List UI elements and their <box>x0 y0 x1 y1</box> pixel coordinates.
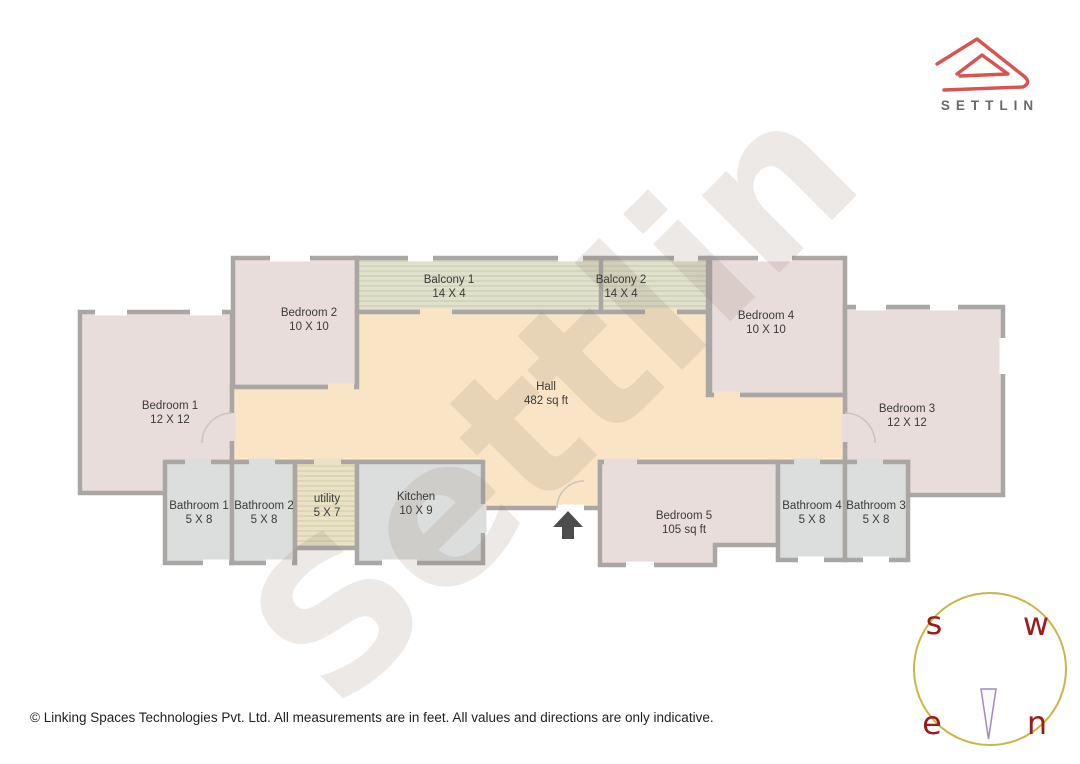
door-gap <box>328 384 354 391</box>
logo-brand-text: SETTLIN <box>941 98 1039 113</box>
room-label-bathroom-2: Bathroom 2 <box>234 500 293 512</box>
compass-letter-e: e <box>922 704 942 742</box>
room-label-hall: Hall <box>536 381 556 393</box>
window-gap <box>798 557 824 564</box>
settlin-logo: SETTLIN <box>937 39 1039 113</box>
door-gap <box>842 414 849 442</box>
room-dims-bathroom-3: 5 X 8 <box>863 514 890 526</box>
door-gap <box>229 413 236 441</box>
room-dims-bathroom-1: 5 X 8 <box>186 514 213 526</box>
room-label-bedroom-3: Bedroom 3 <box>879 403 935 415</box>
window-gap <box>863 557 889 564</box>
room-label-bathroom-1: Bathroom 1 <box>169 500 228 512</box>
room-label-balcony-2: Balcony 2 <box>596 274 647 286</box>
window-gap <box>95 309 127 316</box>
room-label-balcony-1: Balcony 1 <box>424 274 475 286</box>
room-label-bathroom-3: Bathroom 3 <box>846 500 905 512</box>
window-gap <box>190 309 222 316</box>
door-gap <box>185 459 211 466</box>
compass-letter-s: s <box>926 604 943 642</box>
logo-roof-icon <box>937 39 1028 90</box>
room-dims-bedroom-4: 10 X 10 <box>746 324 786 336</box>
window-gap <box>1000 338 1007 374</box>
room-dims-bathroom-4: 5 X 8 <box>799 514 826 526</box>
room-label-bedroom-5: Bedroom 5 <box>656 510 712 522</box>
room-dims-bedroom-2: 10 X 10 <box>289 321 329 333</box>
room-label-bedroom-2: Bedroom 2 <box>281 307 337 319</box>
room-dims-kitchen: 10 X 9 <box>399 505 432 517</box>
copyright-text: © Linking Spaces Technologies Pvt. Ltd. … <box>30 710 714 725</box>
compass-letter-n: n <box>1027 704 1047 742</box>
room-dims-bedroom-5: 105 sq ft <box>662 524 707 536</box>
window-gap <box>408 255 433 262</box>
page: { "page": { "watermark": "Settlin" }, "l… <box>0 0 1080 764</box>
compass: s w e n <box>914 593 1066 745</box>
window-gap <box>270 255 310 262</box>
room-dims-balcony-2: 14 X 4 <box>604 288 638 300</box>
room-bathroom-1-floor <box>165 462 232 563</box>
compass-letter-w: w <box>1023 605 1049 643</box>
door-gap <box>420 309 452 316</box>
room-label-bedroom-1: Bedroom 1 <box>142 400 198 412</box>
floorplan-canvas: Settlin Bedroom 1 12 X 12 Bedroom 2 10 X… <box>0 0 1080 764</box>
room-label-bedroom-4: Bedroom 4 <box>738 310 795 322</box>
window-gap <box>930 304 958 311</box>
room-dims-bedroom-3: 12 X 12 <box>887 417 927 429</box>
door-gap <box>857 459 883 466</box>
door-gap <box>249 459 275 466</box>
room-label-bathroom-4: Bathroom 4 <box>782 500 842 512</box>
room-label-utility: utility <box>314 493 340 505</box>
room-dims-bedroom-1: 12 X 12 <box>150 414 190 426</box>
window-gap <box>626 562 654 569</box>
room-dims-bathroom-2: 5 X 8 <box>251 514 278 526</box>
room-dims-hall: 482 sq ft <box>524 395 569 407</box>
room-dims-balcony-1: 14 X 4 <box>432 288 466 300</box>
window-gap <box>856 304 886 311</box>
compass-needle-icon <box>981 689 996 739</box>
room-dims-utility: 5 X 7 <box>314 507 341 519</box>
door-gap <box>794 459 820 466</box>
room-label-kitchen: Kitchen <box>397 491 435 503</box>
